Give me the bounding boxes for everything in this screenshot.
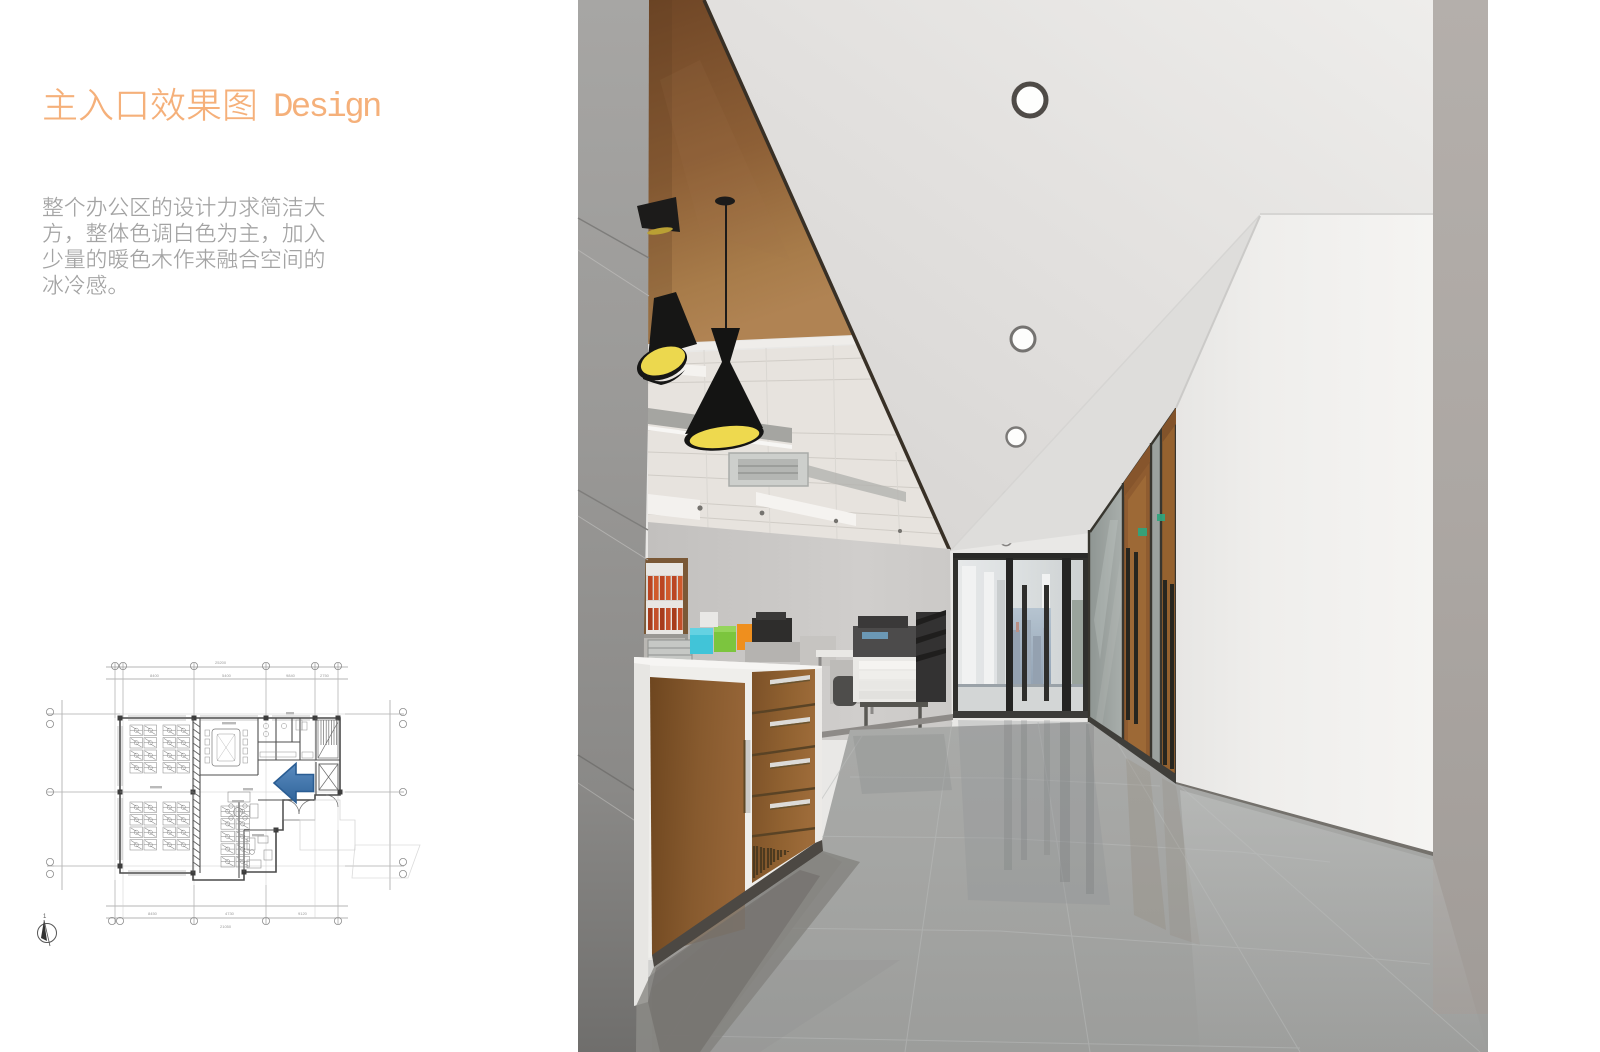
svg-text:21050: 21050 [220, 924, 232, 929]
svg-text:4730: 4730 [225, 911, 235, 916]
svg-text:2750: 2750 [320, 673, 330, 678]
svg-text:8400: 8400 [150, 673, 160, 678]
svg-text:9840: 9840 [286, 673, 296, 678]
svg-text:9120: 9120 [298, 911, 308, 916]
svg-text:8450: 8450 [148, 911, 158, 916]
svg-text:25200: 25200 [215, 660, 227, 665]
svg-text:5400: 5400 [222, 673, 232, 678]
svg-text:Design: Design [273, 89, 380, 127]
